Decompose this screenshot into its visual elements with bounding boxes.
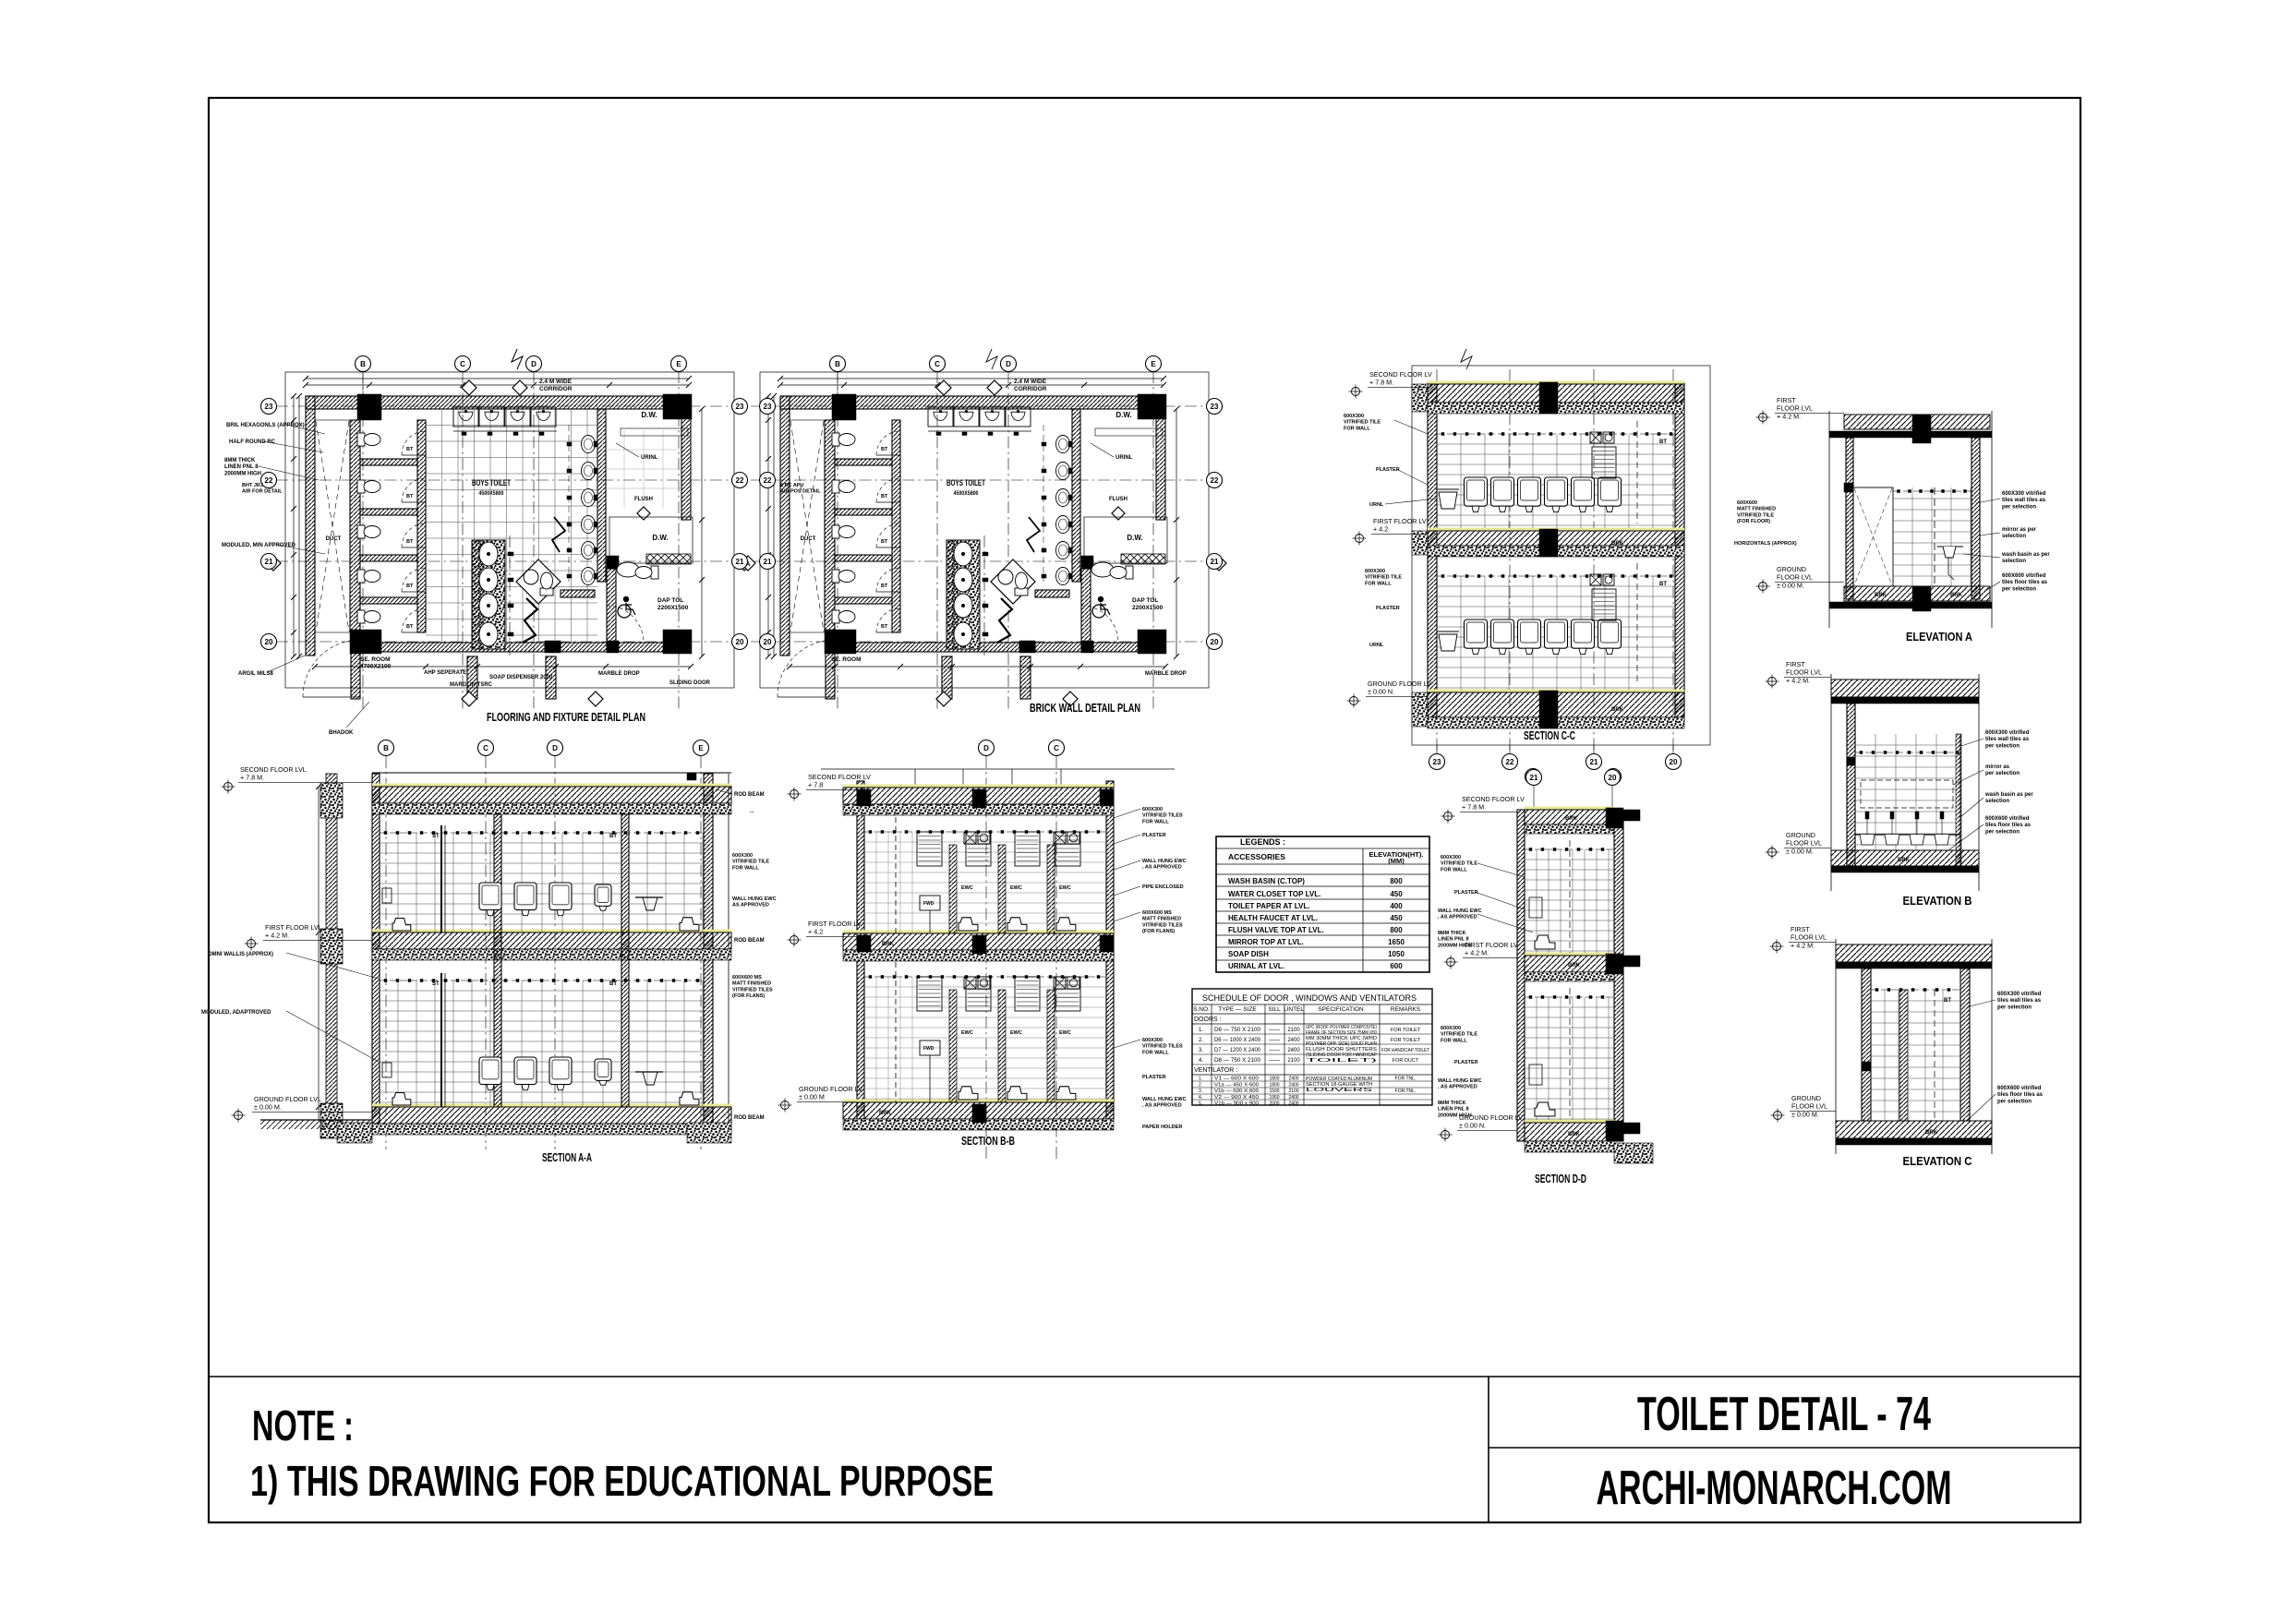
- svg-text:D8 — 750 X 2100: D8 — 750 X 2100: [1214, 1058, 1261, 1064]
- svg-text:+ 4.2: + 4.2: [1373, 525, 1388, 534]
- svg-text:FOR DUCT: FOR DUCT: [1393, 1058, 1419, 1064]
- svg-text:2400: 2400: [1287, 1038, 1300, 1043]
- svg-text:BHADOK: BHADOK: [329, 730, 354, 736]
- svg-text:BHT JRJ: BHT JRJ: [242, 483, 263, 488]
- svg-text:DAP TOL: DAP TOL: [657, 597, 683, 604]
- svg-text:2400: 2400: [1288, 1095, 1298, 1101]
- svg-text:21: 21: [1530, 774, 1538, 782]
- svg-text:600X600 vitrified: 600X600 vitrified: [1985, 816, 2030, 822]
- svg-text:1950: 1950: [1269, 1095, 1279, 1101]
- svg-text:BT: BT: [406, 583, 414, 589]
- svg-text:BRK: BRK: [1898, 858, 1911, 863]
- svg-text:600X300: 600X300: [1142, 1038, 1163, 1043]
- svg-text:SECOND FLOOR LVL: SECOND FLOOR LVL: [240, 765, 307, 774]
- svg-text:SECOND FLOOR LV: SECOND FLOOR LV: [1462, 795, 1525, 803]
- svg-text:LINTEL: LINTEL: [1284, 1006, 1304, 1013]
- svg-text:FIRST FLOOR LV: FIRST FLOOR LV: [808, 920, 862, 928]
- svg-text:PLASTER: PLASTER: [1142, 1075, 1166, 1080]
- svg-text:per selection: per selection: [1985, 771, 2020, 776]
- svg-text:BT: BT: [881, 624, 888, 630]
- svg-text:AIR FOR DETAIL: AIR FOR DETAIL: [242, 489, 283, 495]
- svg-text:CORRIDOR: CORRIDOR: [1014, 386, 1047, 392]
- svg-text:per selection: per selection: [2002, 504, 2036, 510]
- svg-text:2.4 M WIDE: 2.4 M WIDE: [1014, 379, 1047, 385]
- svg-text:22: 22: [1211, 476, 1219, 485]
- svg-text:ELEVATION C: ELEVATION C: [1903, 1154, 1973, 1168]
- svg-text:450: 450: [1390, 914, 1403, 922]
- svg-text:(FOR FLOOR): (FOR FLOOR): [1737, 519, 1770, 524]
- svg-text:LINEN PNL 8: LINEN PNL 8: [224, 464, 259, 470]
- svg-text:BRK: BRK: [1611, 541, 1624, 547]
- svg-text:21: 21: [736, 558, 744, 566]
- svg-text:SECTION D-D: SECTION D-D: [1535, 1172, 1586, 1185]
- svg-text:tiles wall tiles as: tiles wall tiles as: [1997, 998, 2042, 1004]
- svg-text:ELEVATION B: ELEVATION B: [1903, 894, 1972, 908]
- svg-text:+ 4.2: + 4.2: [808, 928, 823, 936]
- svg-text:ST: ST: [432, 981, 440, 987]
- svg-text:VITRIFIED TILE: VITRIFIED TILE: [1737, 512, 1774, 518]
- svg-text:, AS APPROVED: , AS APPROVED: [1438, 915, 1477, 920]
- svg-text:600X300: 600X300: [732, 853, 753, 859]
- svg-text:DAP TOL: DAP TOL: [1132, 597, 1158, 604]
- svg-text:VENTILATOR :: VENTILATOR :: [1194, 1067, 1237, 1074]
- svg-text:600X600 vitrified: 600X600 vitrified: [2002, 573, 2046, 579]
- svg-text:AS APPROVED: AS APPROVED: [732, 903, 769, 908]
- svg-text:WATER CLOSET TOP LVL.: WATER CLOSET TOP LVL.: [1228, 890, 1320, 898]
- svg-text:DUCT: DUCT: [801, 536, 816, 542]
- svg-text:FOR WALL: FOR WALL: [1441, 1038, 1467, 1043]
- svg-text:FLOOR LVL: FLOOR LVL: [1777, 573, 1813, 582]
- svg-text:BRK: BRK: [1925, 1130, 1938, 1136]
- svg-text:800: 800: [1390, 926, 1403, 934]
- svg-text:600X300: 600X300: [1441, 855, 1461, 860]
- svg-text:FOR TOILET: FOR TOILET: [1391, 1038, 1421, 1043]
- svg-text:D6 — 1000 X 2400: D6 — 1000 X 2400: [1214, 1038, 1261, 1043]
- svg-text:4.: 4.: [1199, 1095, 1202, 1101]
- svg-text:20: 20: [764, 638, 772, 646]
- svg-text:2100: 2100: [1287, 1028, 1300, 1033]
- svg-text:SOAP DISPENSER 2000: SOAP DISPENSER 2000: [489, 675, 553, 680]
- svg-text:BRK: BRK: [1565, 816, 1578, 822]
- svg-text:BRK: BRK: [882, 942, 895, 947]
- svg-text:± 0.00 N.: ± 0.00 N.: [1459, 1122, 1486, 1130]
- svg-text:D: D: [983, 744, 989, 752]
- svg-text:WALL HUNG EWC: WALL HUNG EWC: [1438, 908, 1482, 914]
- svg-text:BOYS TOILET: BOYS TOILET: [472, 478, 511, 487]
- svg-text:FOR WALL: FOR WALL: [1441, 867, 1467, 872]
- svg-text:PLASTER: PLASTER: [1454, 890, 1478, 896]
- svg-text:MODULED, ADAPTROVED: MODULED, ADAPTROVED: [201, 1010, 271, 1016]
- svg-text:WALL HUNG EWC: WALL HUNG EWC: [1142, 859, 1187, 864]
- svg-text:mirror as per: mirror as per: [2002, 527, 2037, 533]
- svg-text:tiles floor tiles as: tiles floor tiles as: [2002, 580, 2048, 585]
- svg-text:GROUND FLOOR LVL: GROUND FLOOR LVL: [254, 1095, 321, 1103]
- svg-text:B: B: [360, 360, 366, 368]
- svg-text:FOR TNL.: FOR TNL.: [1395, 1089, 1417, 1094]
- svg-text:± 0.00 M: ± 0.00 M: [799, 1093, 825, 1101]
- svg-text:450: 450: [1390, 890, 1403, 898]
- svg-text:selection: selection: [1985, 799, 2009, 804]
- svg-text:FOR TNL.: FOR TNL.: [1395, 1077, 1417, 1082]
- svg-text:D6 — 750 X 2100: D6 — 750 X 2100: [1214, 1028, 1261, 1033]
- svg-text:2200X1500: 2200X1500: [1132, 605, 1164, 611]
- svg-text:V1 — 600 X 600: V1 — 600 X 600: [1214, 1077, 1259, 1082]
- svg-text:1050: 1050: [1388, 950, 1405, 958]
- svg-text:2000MM HIGH: 2000MM HIGH: [224, 471, 261, 476]
- svg-text:2000MM HIGH: 2000MM HIGH: [1438, 1113, 1472, 1118]
- svg-text:FLOORING AND FIXTURE DETAIL PL: FLOORING AND FIXTURE DETAIL PLAN: [487, 710, 645, 724]
- svg-text:LINEN PNL 8: LINEN PNL 8: [1438, 1107, 1469, 1113]
- svg-text:E: E: [698, 744, 704, 752]
- svg-text:1.: 1.: [1199, 1028, 1203, 1033]
- svg-text:D.W.: D.W.: [1115, 411, 1131, 419]
- svg-text:VITRIFIED TILES: VITRIFIED TILES: [732, 987, 773, 992]
- svg-text:URINL: URINL: [641, 455, 658, 461]
- svg-text:3.: 3.: [1199, 1048, 1203, 1053]
- svg-text:600X300: 600X300: [1441, 1026, 1461, 1031]
- svg-text:ACCESSORIES: ACCESSORIES: [1228, 852, 1285, 861]
- svg-text:BT: BT: [406, 447, 414, 452]
- svg-text:BT: BT: [1659, 582, 1667, 587]
- svg-text:600X600 MS: 600X600 MS: [1142, 910, 1172, 916]
- svg-text:8MM THICK: 8MM THICK: [224, 458, 256, 463]
- svg-text:6 RC APU: 6 RC APU: [780, 483, 803, 488]
- svg-text:SCHEDULE OF DOOR , WINDOWS AND: SCHEDULE OF DOOR , WINDOWS AND VENTILATO…: [1202, 993, 1417, 1004]
- svg-text:, AS APPROVED: , AS APPROVED: [1438, 1085, 1477, 1090]
- svg-text:600X600 MS: 600X600 MS: [732, 975, 762, 980]
- svg-text:2100: 2100: [1287, 1058, 1300, 1064]
- svg-text:V2 — 900 X 450: V2 — 900 X 450: [1214, 1095, 1259, 1101]
- svg-text:BT: BT: [406, 539, 414, 545]
- svg-text:LOUVERS: LOUVERS: [1306, 1088, 1374, 1093]
- svg-text:selection: selection: [2002, 534, 2026, 539]
- svg-text:SE. ROOM: SE. ROOM: [831, 656, 862, 663]
- svg-text:22: 22: [265, 476, 273, 485]
- svg-text:FLOOR LVL: FLOOR LVL: [1791, 933, 1827, 942]
- svg-text:D: D: [1006, 360, 1011, 368]
- svg-text:FIRST FLOOR LVL: FIRST FLOOR LVL: [265, 923, 322, 932]
- svg-text:C: C: [483, 744, 488, 752]
- svg-text:(FOR FLANS): (FOR FLANS): [732, 993, 765, 999]
- svg-text:B: B: [383, 744, 389, 752]
- svg-text:B: B: [835, 360, 840, 368]
- svg-text:per selection: per selection: [1997, 1099, 2032, 1104]
- svg-text:23: 23: [1433, 758, 1441, 766]
- svg-text:23: 23: [1211, 403, 1219, 411]
- svg-text:URNL: URNL: [1369, 502, 1384, 508]
- svg-text:ELEVATION A: ELEVATION A: [1906, 630, 1973, 644]
- svg-text:21: 21: [1211, 558, 1219, 566]
- svg-text:EWC: EWC: [1010, 885, 1022, 891]
- svg-text:SE. ROOM: SE. ROOM: [360, 656, 391, 663]
- svg-text:PLASTER: PLASTER: [1376, 467, 1400, 473]
- svg-text:600X300: 600X300: [1142, 807, 1163, 812]
- svg-text:20: 20: [265, 638, 273, 646]
- svg-text:4500X5800: 4500X5800: [954, 491, 980, 497]
- svg-text:4700X2100: 4700X2100: [360, 664, 392, 670]
- svg-text:MIRROR TOP AT LVL.: MIRROR TOP AT LVL.: [1228, 938, 1304, 946]
- svg-text:D: D: [531, 360, 537, 368]
- svg-text:PLASTER: PLASTER: [1142, 833, 1166, 838]
- svg-text:SECOND FLOOR LV: SECOND FLOOR LV: [808, 773, 871, 781]
- svg-text:DOORS :: DOORS :: [1194, 1017, 1222, 1023]
- svg-text:PIPE ENCLOSED: PIPE ENCLOSED: [1142, 884, 1184, 890]
- svg-text:VITRIFIED TILE: VITRIFIED TILE: [1365, 575, 1402, 581]
- svg-text:FIRST: FIRST: [1791, 925, 1810, 933]
- svg-text:tiles wall tiles as: tiles wall tiles as: [1985, 737, 2030, 742]
- svg-text:MARGLIN TSRC: MARGLIN TSRC: [450, 682, 493, 688]
- svg-text:——: ——: [1269, 1048, 1280, 1053]
- svg-text:+ 7.8 M.: + 7.8 M.: [1462, 803, 1486, 812]
- svg-text:SILL: SILL: [1268, 1006, 1281, 1013]
- svg-text:2.: 2.: [1199, 1038, 1203, 1043]
- svg-text:SECOND FLOOR LV: SECOND FLOOR LV: [1369, 370, 1432, 379]
- svg-text:FOR WALL: FOR WALL: [1142, 819, 1169, 824]
- svg-text:MODULED, MIN APPROVED: MODULED, MIN APPROVED: [222, 543, 295, 548]
- svg-text:2400: 2400: [1288, 1082, 1298, 1088]
- svg-text:V1b — 900 x 900: V1b — 900 x 900: [1214, 1101, 1259, 1107]
- svg-text:2000MM HIGH: 2000MM HIGH: [1438, 943, 1472, 948]
- svg-text:5.: 5.: [1199, 1101, 1202, 1107]
- svg-text:BRK: BRK: [1875, 593, 1887, 598]
- svg-text:FLUSH VALVE TOP AT LVL.: FLUSH VALVE TOP AT LVL.: [1228, 926, 1324, 934]
- svg-text:OMNI WALLIS (APPROX): OMNI WALLIS (APPROX): [208, 952, 273, 957]
- svg-text:23: 23: [265, 403, 273, 411]
- svg-text:20: 20: [736, 638, 744, 646]
- svg-text:E: E: [676, 360, 681, 368]
- svg-text:FLOOR LVL: FLOOR LVL: [1786, 839, 1822, 848]
- svg-text:MATT FINISHED: MATT FINISHED: [1737, 507, 1776, 512]
- svg-text:DUCT: DUCT: [326, 536, 342, 542]
- svg-text:23: 23: [736, 403, 744, 411]
- svg-text:SECTION A-A: SECTION A-A: [542, 1150, 592, 1164]
- svg-text:2400: 2400: [1288, 1101, 1298, 1107]
- svg-text:+ 4.2 M.: + 4.2 M.: [265, 932, 289, 940]
- svg-text:ST: ST: [432, 834, 440, 839]
- svg-text:AIR POS DETAIL: AIR POS DETAIL: [780, 489, 821, 495]
- svg-text:REMARKS: REMARKS: [1391, 1006, 1421, 1013]
- svg-text:PLASTER: PLASTER: [1454, 1060, 1478, 1065]
- svg-text:20: 20: [1670, 758, 1678, 766]
- svg-text:WALL HUNG EWC: WALL HUNG EWC: [732, 896, 777, 902]
- svg-text:FWD: FWD: [923, 901, 934, 907]
- svg-text:URNL: URNL: [1369, 643, 1384, 648]
- svg-text:TOILET): TOILET): [1306, 1058, 1378, 1064]
- svg-text:FOR WALL: FOR WALL: [1365, 581, 1392, 586]
- svg-text:tiles floor tiles as: tiles floor tiles as: [1997, 1092, 2044, 1098]
- svg-text:+ 7.8 M.: + 7.8 M.: [240, 774, 264, 782]
- svg-text:23: 23: [764, 403, 772, 411]
- svg-text:tiles floor tiles as: tiles floor tiles as: [1985, 823, 2032, 828]
- svg-text:FIRST FLOOR LV: FIRST FLOOR LV: [1465, 941, 1518, 949]
- svg-text:D: D: [552, 744, 558, 752]
- svg-text:400: 400: [1390, 902, 1403, 910]
- svg-text:1800: 1800: [1269, 1082, 1279, 1088]
- svg-text:BRK: BRK: [1611, 707, 1624, 713]
- svg-text:——: ——: [1269, 1028, 1280, 1033]
- svg-text:per selection: per selection: [1997, 1004, 2032, 1010]
- svg-text:1.: 1.: [1199, 1077, 1202, 1082]
- svg-text:PAPER HOLDER: PAPER HOLDER: [1142, 1125, 1182, 1130]
- svg-text:FOR WALL: FOR WALL: [1344, 426, 1370, 431]
- svg-text:BT: BT: [1944, 998, 1951, 1004]
- svg-text:600X300: 600X300: [1344, 414, 1364, 419]
- svg-text:22: 22: [736, 476, 744, 485]
- svg-text:(MM): (MM): [1388, 857, 1405, 865]
- svg-text:21: 21: [1590, 758, 1598, 766]
- svg-text:mirror as: mirror as: [1985, 764, 2010, 770]
- svg-text:600X300 vitrified: 600X300 vitrified: [1997, 992, 2042, 997]
- svg-text:4500X5800: 4500X5800: [479, 491, 505, 497]
- svg-text:V1a — 450 X 600: V1a — 450 X 600: [1214, 1082, 1259, 1088]
- svg-text:LEGENDS :: LEGENDS :: [1240, 837, 1285, 847]
- svg-text:MARBLE DROP: MARBLE DROP: [1145, 671, 1187, 677]
- svg-text:20: 20: [1609, 774, 1617, 782]
- svg-text:WASH BASIN (C.TOP): WASH BASIN (C.TOP): [1228, 877, 1305, 885]
- svg-text:FLUSH: FLUSH: [634, 497, 653, 502]
- svg-text:FIRST FLOOR LV: FIRST FLOOR LV: [1373, 517, 1427, 525]
- svg-text:D.W.: D.W.: [1127, 534, 1142, 542]
- svg-text:+ 7.8: + 7.8: [808, 781, 823, 789]
- svg-text:FLOOR LVL: FLOOR LVL: [1777, 404, 1813, 413]
- svg-text:EWC: EWC: [961, 885, 973, 891]
- svg-text:FLUSH: FLUSH: [1109, 497, 1127, 502]
- svg-text:600: 600: [1390, 962, 1403, 970]
- svg-text:BT: BT: [609, 981, 617, 987]
- svg-text:VITRIFIED TILE: VITRIFIED TILE: [1441, 1032, 1477, 1038]
- svg-text:2100: 2100: [1288, 1089, 1298, 1094]
- svg-text:8MM THICK: 8MM THICK: [1438, 931, 1466, 936]
- svg-text:wash basin as per: wash basin as per: [2001, 552, 2050, 558]
- svg-text:S.NO.: S.NO.: [1193, 1006, 1210, 1013]
- svg-text:AHP SEPERATE: AHP SEPERATE: [424, 670, 466, 676]
- svg-text:22: 22: [764, 476, 772, 485]
- svg-text:FIRST: FIRST: [1777, 396, 1796, 404]
- svg-text:FWD: FWD: [923, 1046, 934, 1052]
- svg-text:BOYS TOILET: BOYS TOILET: [947, 478, 985, 487]
- svg-text:D.W.: D.W.: [652, 534, 668, 542]
- svg-text:2400: 2400: [1288, 1077, 1298, 1082]
- svg-text:MATT FINISHED: MATT FINISHED: [732, 981, 771, 987]
- svg-text:FIRST: FIRST: [1786, 660, 1805, 668]
- svg-text:TOILET DETAIL - 74: TOILET DETAIL - 74: [1637, 1388, 1931, 1441]
- svg-text:FOR WALL: FOR WALL: [1142, 1050, 1169, 1055]
- svg-text:+ 7.8 M.: + 7.8 M.: [1369, 379, 1393, 387]
- svg-text:WALL HUNG EWC: WALL HUNG EWC: [1438, 1078, 1482, 1084]
- svg-text:——: ——: [1269, 1058, 1280, 1064]
- svg-text:SLIDING DOOR: SLIDING DOOR: [669, 680, 711, 686]
- svg-text:URINL: URINL: [1115, 455, 1133, 461]
- svg-text:D7 — 1200 X 2400: D7 — 1200 X 2400: [1214, 1048, 1261, 1053]
- svg-text:ROD BEAM: ROD BEAM: [734, 792, 765, 798]
- svg-text:VITRIFIED TILE: VITRIFIED TILE: [732, 860, 769, 865]
- svg-text:BT: BT: [406, 624, 414, 630]
- svg-text:FLOOR LVL: FLOOR LVL: [1791, 1102, 1827, 1111]
- svg-text:GROUND: GROUND: [1777, 565, 1806, 573]
- svg-text:FOR TOILET: FOR TOILET: [1391, 1028, 1421, 1033]
- svg-text:8MM THICK: 8MM THICK: [1438, 1101, 1466, 1106]
- svg-text:VITRIFIED TILES: VITRIFIED TILES: [1142, 922, 1183, 928]
- svg-text:GROUND: GROUND: [1791, 1094, 1821, 1102]
- svg-text:FLOOR LVL: FLOOR LVL: [1786, 668, 1822, 677]
- svg-text:BRK: BRK: [1950, 593, 1963, 598]
- svg-text:BRIL HEXAGONLS (APPROX): BRIL HEXAGONLS (APPROX): [226, 423, 305, 428]
- svg-text:CORRIDOR: CORRIDOR: [539, 386, 573, 392]
- svg-text:± 0.00 N.: ± 0.00 N.: [1368, 688, 1394, 696]
- svg-text:BT: BT: [406, 494, 414, 499]
- svg-text:FOR HANDICAP TOILET: FOR HANDICAP TOILET: [1381, 1048, 1430, 1053]
- svg-text:BT: BT: [881, 447, 888, 452]
- svg-text:1) THIS DRAWING FOR EDUCATIONA: 1) THIS DRAWING FOR EDUCATIONAL PURPOSE: [250, 1457, 994, 1505]
- svg-text:+ 4.2 M.: + 4.2 M.: [1465, 949, 1489, 957]
- svg-text:21: 21: [265, 558, 273, 566]
- svg-text:1500: 1500: [1269, 1089, 1279, 1094]
- svg-text:TOILET PAPER AT LVL.: TOILET PAPER AT LVL.: [1228, 902, 1309, 910]
- svg-text:ROD BEAM: ROD BEAM: [734, 1115, 765, 1121]
- svg-text:wash basin as per: wash basin as per: [1984, 792, 2033, 798]
- svg-text:MATT FINISHED: MATT FINISHED: [1142, 917, 1181, 922]
- svg-text:600X600: 600X600: [1737, 500, 1757, 506]
- svg-text:LINEN PNL 8: LINEN PNL 8: [1438, 937, 1469, 943]
- svg-text:SOAP DISH: SOAP DISH: [1228, 950, 1269, 958]
- svg-text:TYPE — SIZE: TYPE — SIZE: [1218, 1006, 1257, 1013]
- svg-text:VITRIFIED TILES: VITRIFIED TILES: [1142, 1044, 1183, 1050]
- svg-text:600X300 vitrified: 600X300 vitrified: [2002, 491, 2046, 497]
- svg-text:tiles wall tiles as: tiles wall tiles as: [2002, 498, 2046, 503]
- svg-text:2.4 M WIDE: 2.4 M WIDE: [539, 379, 573, 385]
- svg-text:per selection: per selection: [1985, 829, 2020, 835]
- svg-text:BRK: BRK: [879, 1111, 892, 1116]
- svg-text:EWC: EWC: [961, 1030, 973, 1036]
- svg-text:600X300 vitrified: 600X300 vitrified: [1985, 730, 2030, 736]
- svg-text:2.: 2.: [1199, 1082, 1202, 1088]
- svg-text:4.: 4.: [1199, 1058, 1203, 1064]
- svg-text:HEALTH FAUCET AT LVL.: HEALTH FAUCET AT LVL.: [1228, 914, 1318, 922]
- svg-text:VITRIFIED TILE: VITRIFIED TILE: [1344, 420, 1381, 426]
- svg-text:SECTION C-C: SECTION C-C: [1524, 728, 1575, 742]
- svg-text:VITRIFIED TILE: VITRIFIED TILE: [1441, 861, 1477, 867]
- svg-text:BRK: BRK: [1568, 963, 1581, 968]
- svg-text:± 0.00 M.: ± 0.00 M.: [254, 1103, 282, 1112]
- svg-text:C: C: [934, 360, 940, 368]
- svg-text:2200X1500: 2200X1500: [657, 605, 689, 611]
- svg-text:BT: BT: [881, 583, 888, 589]
- svg-text:BT: BT: [881, 539, 888, 545]
- svg-text:PLASTER: PLASTER: [1376, 606, 1400, 611]
- svg-text:SECTION B-B: SECTION B-B: [961, 1134, 1015, 1148]
- svg-text:ARCHI-MONARCH.COM: ARCHI-MONARCH.COM: [1597, 1462, 1952, 1515]
- svg-text:BRICK WALL DETAIL PLAN: BRICK WALL DETAIL PLAN: [1030, 701, 1140, 715]
- svg-text:EWC: EWC: [1059, 885, 1071, 891]
- svg-text:, AS APPROVED: , AS APPROVED: [1142, 1103, 1182, 1109]
- svg-text:V1b — 600 X 600: V1b — 600 X 600: [1214, 1089, 1259, 1094]
- svg-text:BRK: BRK: [1568, 1132, 1581, 1137]
- svg-text:ROD BEAM: ROD BEAM: [734, 938, 765, 944]
- svg-text:, AS APPROVED: , AS APPROVED: [1142, 865, 1182, 871]
- svg-text:SPECIFICATION: SPECIFICATION: [1318, 1006, 1364, 1013]
- svg-text:2000: 2000: [1269, 1101, 1279, 1107]
- svg-text:C: C: [460, 360, 465, 368]
- svg-text:2400: 2400: [1287, 1048, 1300, 1053]
- svg-text:EWC: EWC: [1010, 1030, 1022, 1036]
- svg-text:GROUND: GROUND: [1786, 831, 1815, 839]
- svg-text:per selection: per selection: [2002, 586, 2036, 592]
- svg-text:VITRIFIED TILES: VITRIFIED TILES: [1142, 813, 1183, 819]
- svg-text:C: C: [1054, 744, 1059, 752]
- svg-text:D.W.: D.W.: [641, 411, 657, 419]
- svg-text:BT: BT: [609, 834, 617, 839]
- svg-text:FOR WALL: FOR WALL: [732, 865, 759, 871]
